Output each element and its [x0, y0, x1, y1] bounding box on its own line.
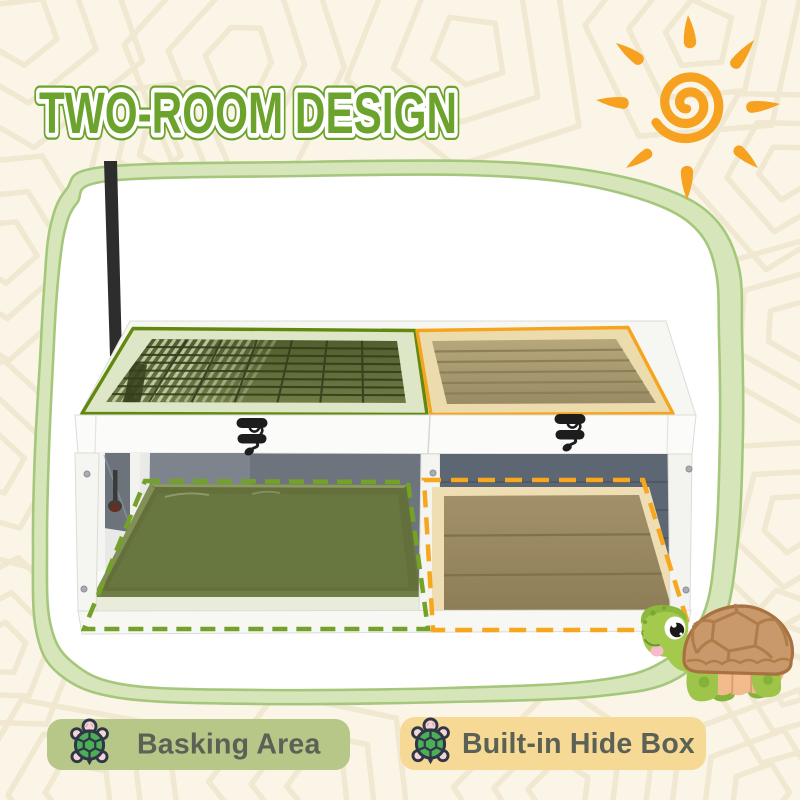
- svg-text:Basking Area: Basking Area: [137, 729, 321, 761]
- svg-text:Built-in Hide Box: Built-in Hide Box: [462, 728, 695, 760]
- svg-text:TWO-ROOM DESIGN: TWO-ROOM DESIGN: [39, 81, 457, 146]
